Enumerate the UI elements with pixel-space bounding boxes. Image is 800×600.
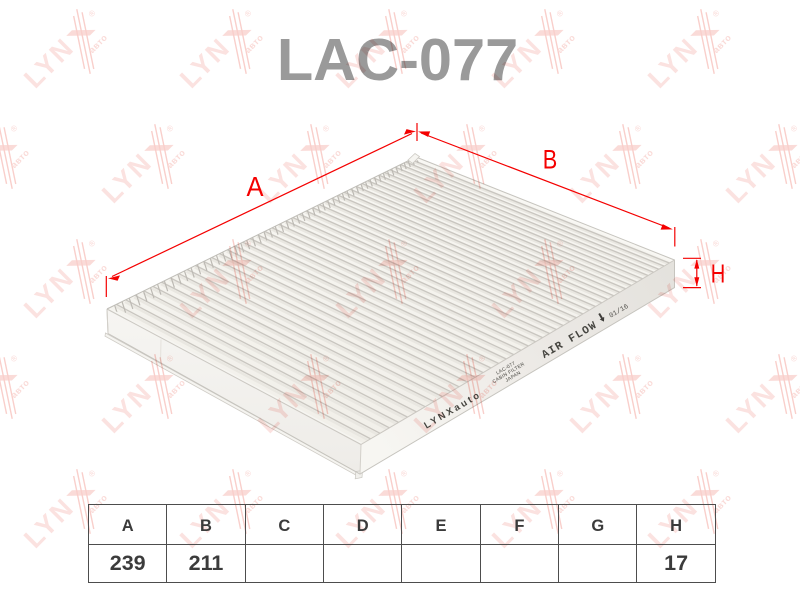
svg-text:H: H — [711, 259, 726, 289]
svg-text:B: B — [543, 145, 558, 175]
svg-text:A: A — [247, 171, 265, 202]
